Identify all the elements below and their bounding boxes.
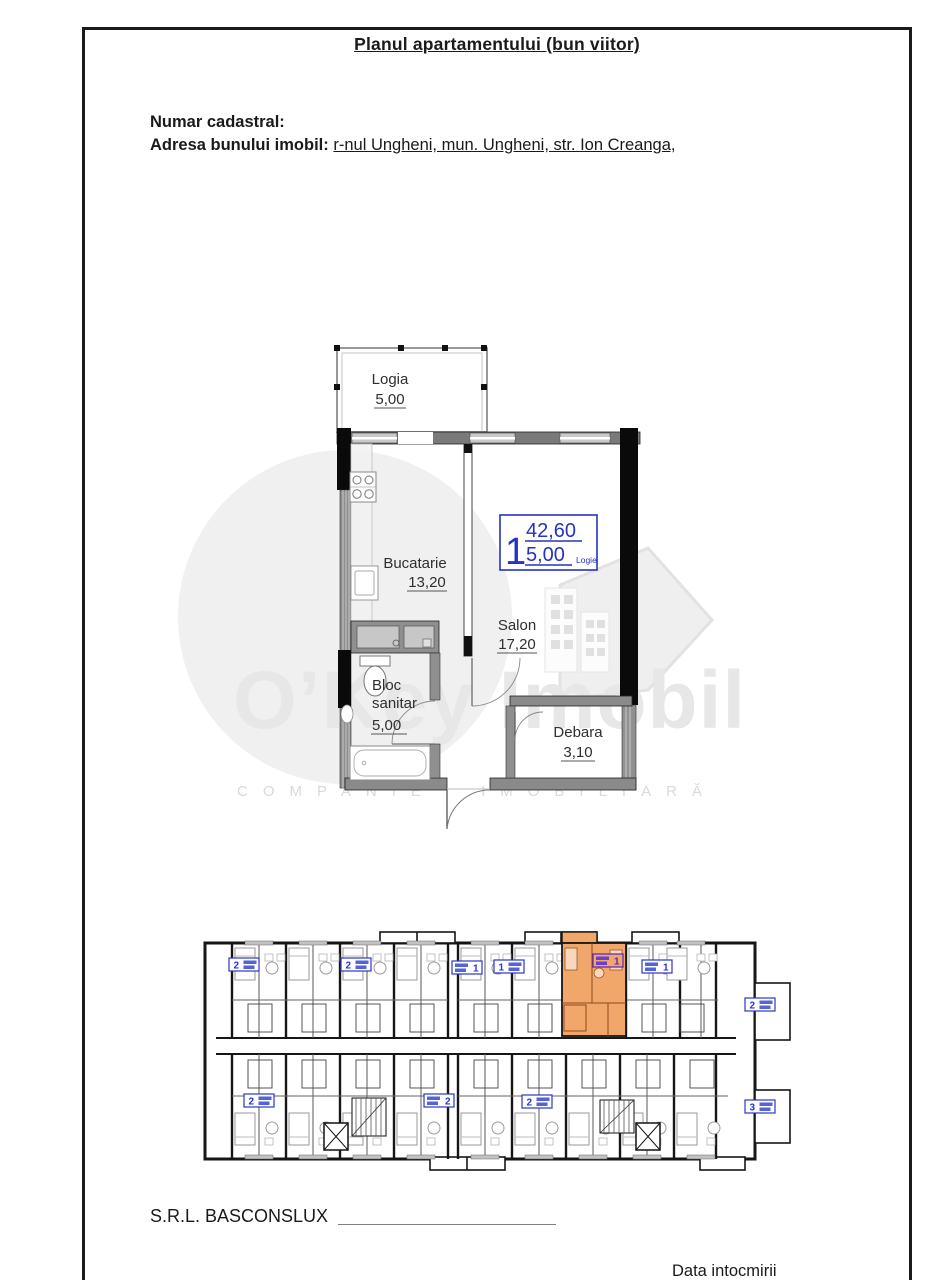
kitchen-cabinets: [351, 621, 439, 653]
svg-text:2: 2: [346, 961, 352, 972]
logia-room: [334, 345, 487, 432]
signature-line: [338, 1224, 556, 1225]
kitchen-sink-icon: [351, 566, 378, 600]
unit-number: 1: [505, 531, 526, 573]
room-area-salon: 17,20: [498, 636, 536, 653]
bathtub-icon: [350, 746, 430, 780]
left-wall-column: [337, 428, 351, 490]
unit-label: 2: [424, 1094, 454, 1108]
property-info-block: Numar cadastral: Adresa bunului imobil: …: [150, 111, 675, 157]
kitchen-salon-wall: [464, 444, 472, 656]
svg-text:2: 2: [527, 1098, 533, 1109]
debara-door-icon: [515, 712, 543, 740]
unit-area-badge: 1 42,60 5,00 Logie: [500, 515, 597, 573]
room-area-bucatarie: 13,20: [408, 574, 446, 591]
bathroom-walls: [430, 653, 440, 778]
unit-label: 1: [452, 961, 482, 975]
svg-text:2: 2: [249, 1097, 255, 1108]
page-title: Planul apartamentului (bun viitor): [82, 34, 912, 55]
room-label-debara: Debara: [553, 724, 603, 741]
room-label-bloc: Bloc: [372, 677, 402, 694]
address-value: r-nul Ungheni, mun. Ungheni, str. Ion Cr…: [333, 136, 675, 154]
washbasin-icon: [341, 705, 353, 723]
entrance-door-icon: [447, 790, 490, 829]
svg-text:1: 1: [663, 963, 669, 974]
apartment-floor-plan: 1 42,60 5,00 Logie Logia 5,00 Bucatarie …: [330, 340, 695, 840]
unit-label: 1: [642, 960, 672, 974]
room-area-logia: 5,00: [375, 391, 404, 408]
unit-total-area: 42,60: [526, 520, 576, 542]
unit-label: 2: [745, 998, 775, 1012]
unit-label: 2: [244, 1094, 274, 1108]
room-area-debara: 3,10: [563, 744, 592, 761]
unit-label-highlighted: 1: [593, 954, 623, 968]
room-label-salon: Salon: [498, 617, 536, 634]
unit-logia-area: 5,00: [526, 544, 565, 566]
room-label-bucatarie: Bucatarie: [383, 555, 446, 572]
cadastral-number-line: Numar cadastral:: [150, 111, 675, 134]
address-label: Adresa bunului imobil:: [150, 136, 329, 154]
hall-debara-wall: [506, 706, 515, 778]
room-label-logia: Logia: [372, 371, 409, 388]
unit-label: 2: [341, 958, 371, 972]
svg-text:1: 1: [473, 964, 479, 975]
svg-text:3: 3: [750, 1103, 756, 1114]
address-line: Adresa bunului imobil: r-nul Ungheni, mu…: [150, 134, 675, 157]
document-page: O’Key Imobil COMPANIE IMOBILIARĂ Planul …: [0, 0, 932, 1280]
building-floor-plan: 2 2 1 1 1: [196, 928, 800, 1172]
company-signature-line: S.R.L. BASCONSLUX: [150, 1206, 556, 1227]
svg-text:2: 2: [750, 1001, 756, 1012]
svg-text:2: 2: [445, 1097, 451, 1108]
unit-label: 2: [522, 1095, 552, 1109]
svg-text:1: 1: [614, 957, 620, 968]
room-label-sanitar: sanitar: [372, 695, 417, 712]
unit-label: 2: [229, 958, 259, 972]
left-wall: [338, 490, 351, 788]
top-wall: [337, 432, 640, 444]
room-area-bloc-sanitar: 5,00: [372, 717, 401, 734]
stove-icon: [350, 472, 376, 502]
date-label: Data intocmirii: [672, 1262, 777, 1280]
unit-label: 3: [745, 1100, 775, 1114]
highlighted-unit: [562, 932, 626, 1036]
unit-logia-word: Logie: [576, 555, 597, 565]
svg-text:2: 2: [234, 961, 240, 972]
svg-text:1: 1: [499, 963, 505, 974]
cadastral-label: Numar cadastral:: [150, 113, 285, 131]
right-wall: [620, 428, 638, 790]
company-name: S.R.L. BASCONSLUX: [150, 1206, 328, 1226]
debara-top-wall: [510, 696, 632, 706]
unit-label: 1: [494, 960, 524, 974]
